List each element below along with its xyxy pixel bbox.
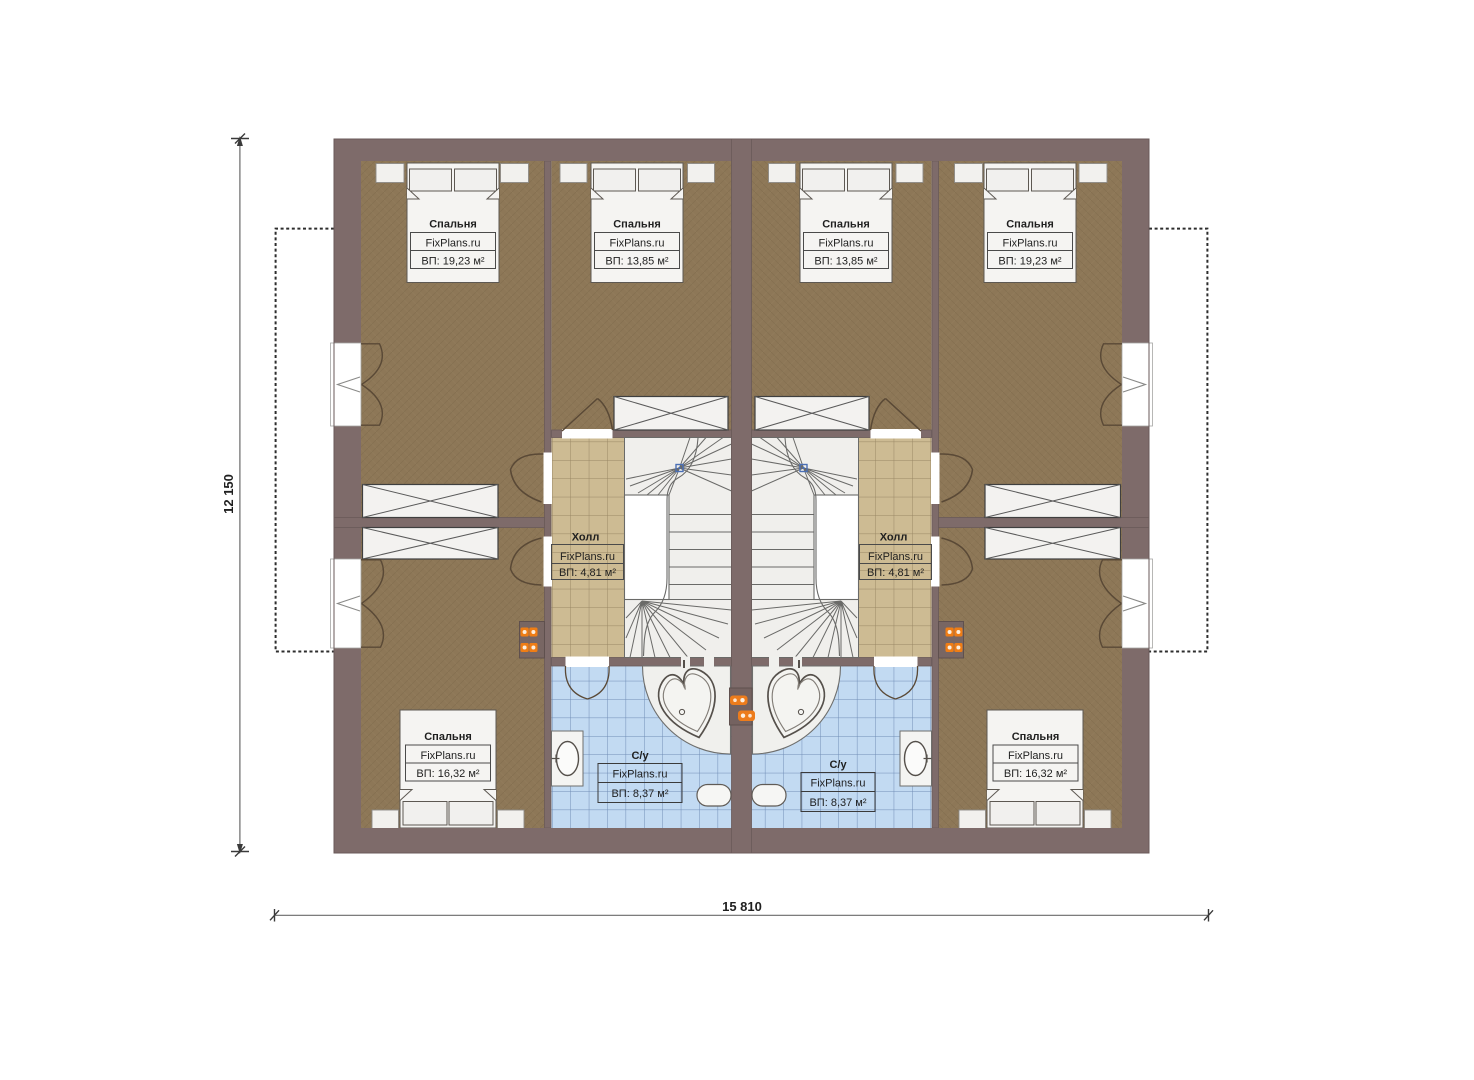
svg-text:ВП: 19,23 м²: ВП: 19,23 м² [998, 256, 1062, 268]
svg-text:ВП: 4,81 м²: ВП: 4,81 м² [559, 567, 616, 579]
svg-text:ВП: 8,37 м²: ВП: 8,37 м² [611, 788, 668, 800]
svg-text:Спальня: Спальня [424, 731, 472, 743]
svg-text:ВП: 8,37 м²: ВП: 8,37 м² [809, 797, 866, 809]
svg-text:FixPlans.ru: FixPlans.ru [609, 238, 664, 250]
svg-text:ВП: 16,32 м²: ВП: 16,32 м² [416, 768, 480, 780]
svg-text:FixPlans.ru: FixPlans.ru [420, 750, 475, 762]
svg-text:Спальня: Спальня [1006, 219, 1054, 231]
svg-text:15 810: 15 810 [722, 899, 762, 914]
svg-text:FixPlans.ru: FixPlans.ru [868, 551, 923, 563]
svg-text:ВП: 19,23 м²: ВП: 19,23 м² [421, 256, 485, 268]
svg-text:С/у: С/у [631, 750, 649, 762]
svg-text:Спальня: Спальня [613, 219, 661, 231]
svg-text:Спальня: Спальня [822, 219, 870, 231]
svg-text:FixPlans.ru: FixPlans.ru [560, 551, 615, 563]
svg-text:FixPlans.ru: FixPlans.ru [1002, 238, 1057, 250]
svg-text:FixPlans.ru: FixPlans.ru [818, 238, 873, 250]
svg-text:ВП: 4,81 м²: ВП: 4,81 м² [867, 567, 924, 579]
svg-text:Холл: Холл [572, 532, 600, 544]
svg-text:FixPlans.ru: FixPlans.ru [810, 778, 865, 790]
svg-text:ВП: 16,32 м²: ВП: 16,32 м² [1004, 768, 1068, 780]
svg-text:FixPlans.ru: FixPlans.ru [1008, 750, 1063, 762]
svg-text:FixPlans.ru: FixPlans.ru [612, 769, 667, 781]
svg-text:ВП: 13,85 м²: ВП: 13,85 м² [814, 256, 878, 268]
svg-text:Спальня: Спальня [429, 219, 477, 231]
svg-text:Холл: Холл [880, 532, 908, 544]
svg-text:Спальня: Спальня [1012, 731, 1060, 743]
svg-text:12 150: 12 150 [221, 474, 236, 514]
svg-text:ВП: 13,85 м²: ВП: 13,85 м² [605, 256, 669, 268]
svg-text:FixPlans.ru: FixPlans.ru [425, 238, 480, 250]
svg-text:С/у: С/у [829, 759, 847, 771]
